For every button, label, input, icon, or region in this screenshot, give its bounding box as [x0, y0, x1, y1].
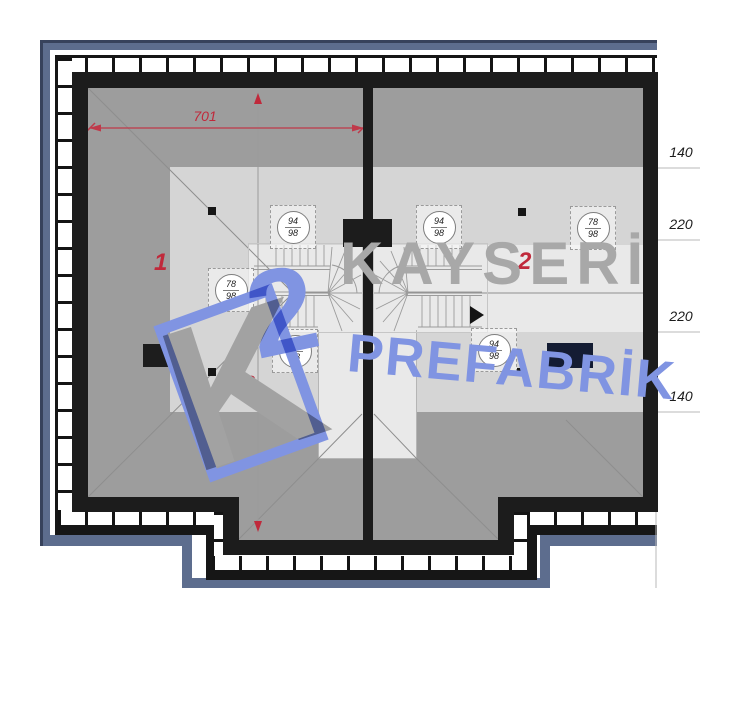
border-slate-bottom-left [40, 535, 192, 546]
roof-marker-square [517, 368, 525, 376]
roof-band-inner [248, 245, 643, 332]
wall-left [72, 72, 88, 512]
elevation-tag: 78 98 [570, 206, 616, 250]
hatch-outline-bottom-right [527, 525, 657, 535]
roof-marker-square [518, 208, 526, 216]
elevation-top-value: 94 [287, 340, 303, 351]
border-slate-bottom-right [540, 535, 657, 546]
hatch-outline-bump-bottom [206, 570, 537, 580]
elevation-bottom-value: 98 [288, 228, 298, 238]
unit-label-2: 2 [518, 248, 531, 276]
width-dimension-label: 701 [178, 108, 232, 124]
elevation-bottom-value: 98 [434, 228, 444, 238]
wall-bottom-left [72, 497, 223, 512]
elevation-top-value: 94 [486, 339, 502, 350]
border-edge-left [40, 40, 43, 546]
right-dimension-label: 140 [662, 388, 700, 404]
elevation-tag-circle: 94 98 [279, 335, 312, 368]
elevation-bottom-value: 98 [226, 291, 236, 301]
insulation-hatch-bottom-left [58, 510, 212, 525]
elevation-tag-circle: 78 98 [577, 212, 610, 245]
elevation-bottom-value: 98 [290, 352, 300, 362]
elevation-top-value: 94 [431, 216, 447, 227]
insulation-hatch-bottom-right [527, 510, 657, 525]
elevation-tag-circle: 78 98 [215, 274, 248, 307]
elevation-tag-circle: 94 98 [423, 211, 456, 244]
border-edge-top [40, 40, 657, 43]
elevation-tag: 94 98 [471, 328, 517, 372]
insulation-hatch-left [58, 58, 72, 512]
chimney-central [343, 219, 392, 247]
elevation-tag: 78 98 [208, 268, 254, 312]
roof-marker-square [208, 368, 216, 376]
right-dimension-label: 220 [662, 216, 700, 232]
hatch-outline-bottom-left [55, 525, 212, 535]
elevation-tag-circle: 94 98 [478, 334, 511, 367]
elevation-tag: 94 98 [272, 329, 318, 373]
elevation-tag: 94 98 [270, 205, 316, 249]
depth-dimension-label: 1155 [242, 360, 258, 420]
roof-hatch-unit2 [547, 343, 593, 368]
wall-bottom-right [514, 497, 658, 512]
wall-right [643, 72, 658, 512]
insulation-hatch-top [58, 58, 657, 72]
unit-label-1: 1 [154, 249, 167, 277]
floor-plan-page: 94 98 78 98 94 98 94 98 78 98 94 98 1 [0, 0, 751, 714]
roof-hatch-unit1 [143, 344, 192, 367]
right-dimension-label: 140 [662, 144, 700, 160]
elevation-tag: 94 98 [416, 205, 462, 249]
elevation-top-value: 78 [223, 279, 239, 290]
elevation-top-value: 78 [585, 217, 601, 228]
roof-marker-square [208, 207, 216, 215]
elevation-tag-circle: 94 98 [277, 211, 310, 244]
elevation-bottom-value: 98 [588, 229, 598, 239]
elevation-top-value: 94 [285, 216, 301, 227]
insulation-hatch-bump-right [514, 512, 527, 558]
insulation-hatch-bump-bottom [212, 556, 527, 570]
right-dimension-label: 220 [662, 308, 700, 324]
elevation-bottom-value: 98 [489, 351, 499, 361]
wall-party-central [363, 72, 373, 555]
